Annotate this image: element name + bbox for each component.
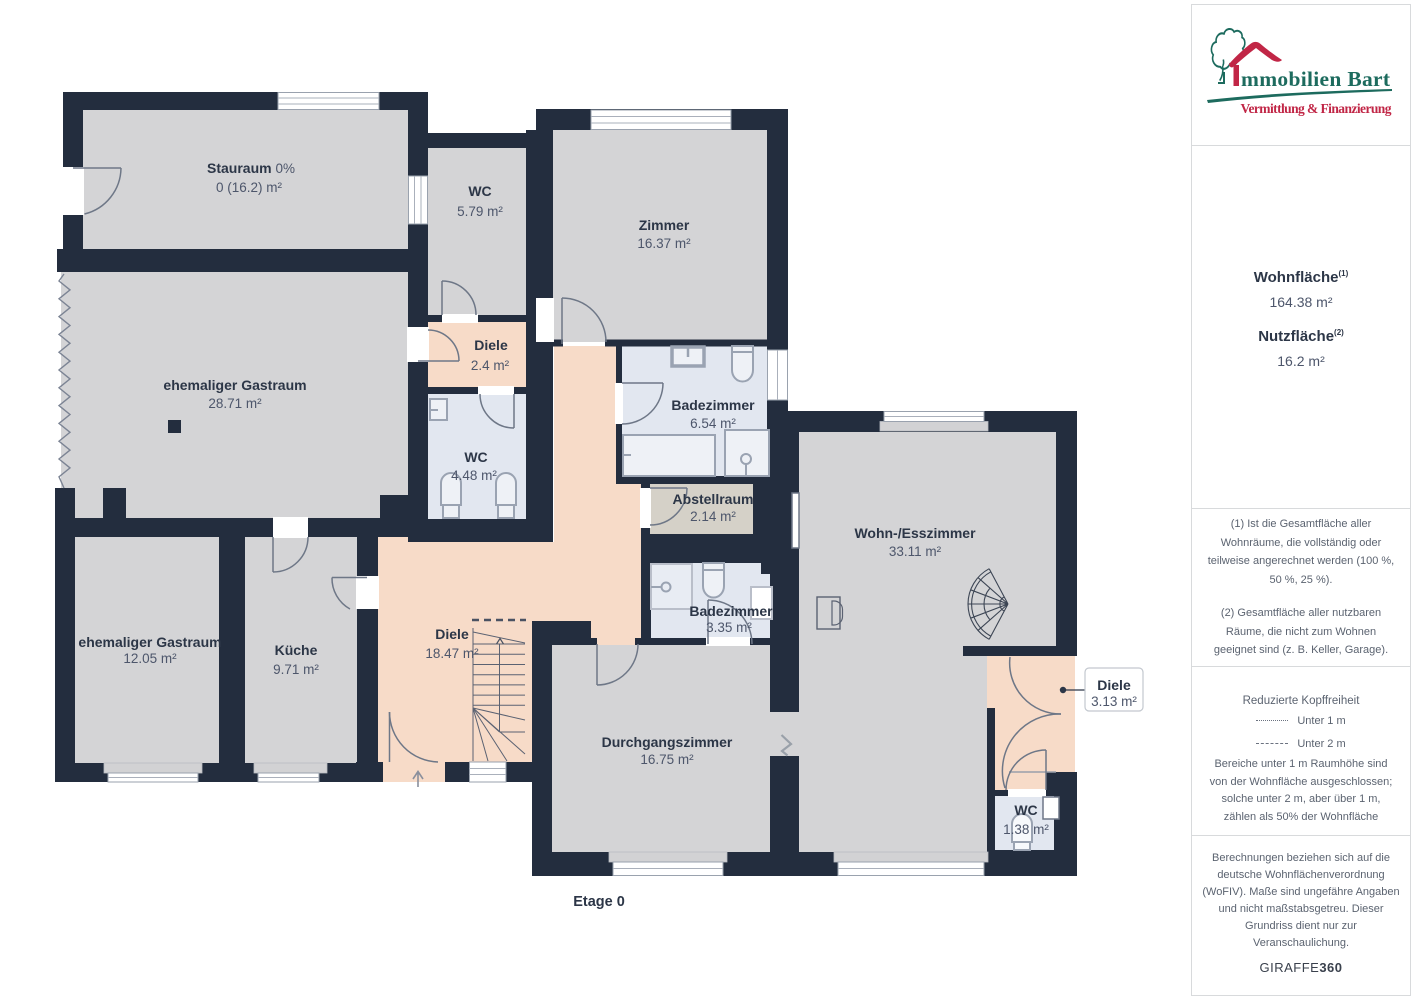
- svg-text:Küche: Küche: [275, 642, 318, 658]
- svg-text:WC: WC: [1014, 802, 1037, 818]
- svg-text:mmobilien Bart: mmobilien Bart: [1241, 67, 1391, 91]
- svg-text:Diele: Diele: [435, 626, 469, 642]
- svg-text:Etage 0: Etage 0: [573, 894, 625, 910]
- svg-text:16.37 m²: 16.37 m²: [637, 236, 691, 251]
- svg-text:3.13 m²: 3.13 m²: [1091, 694, 1137, 709]
- svg-text:6.54 m²: 6.54 m²: [690, 416, 736, 431]
- svg-text:28.71 m²: 28.71 m²: [208, 396, 262, 411]
- svg-text:9.71 m²: 9.71 m²: [273, 662, 319, 677]
- svg-text:Vermittlung & Finanzierung: Vermittlung & Finanzierung: [1241, 101, 1392, 116]
- svg-text:3.35 m²: 3.35 m²: [706, 620, 752, 635]
- svg-text:12.05 m²: 12.05 m²: [123, 651, 177, 666]
- svg-text:Abstellraum: Abstellraum: [673, 491, 754, 507]
- svg-text:WC: WC: [464, 449, 487, 465]
- svg-text:2.4 m²: 2.4 m²: [471, 358, 510, 373]
- svg-text:Stauraum 0%: Stauraum 0%: [207, 160, 295, 176]
- svg-text:Wohn-/Esszimmer: Wohn-/Esszimmer: [854, 525, 976, 541]
- svg-text:16.75 m²: 16.75 m²: [640, 752, 694, 767]
- svg-text:WC: WC: [468, 183, 491, 199]
- svg-text:ehemaliger Gastraum: ehemaliger Gastraum: [163, 377, 306, 393]
- svg-text:Badezimmer: Badezimmer: [689, 603, 773, 619]
- svg-text:Badezimmer: Badezimmer: [671, 397, 755, 413]
- svg-text:1.38 m²: 1.38 m²: [1003, 822, 1049, 837]
- svg-text:Diele: Diele: [474, 337, 508, 353]
- svg-text:18.47 m²: 18.47 m²: [425, 646, 479, 661]
- svg-text:Durchgangszimmer: Durchgangszimmer: [602, 734, 733, 750]
- svg-text:ehemaliger Gastraum: ehemaliger Gastraum: [78, 634, 221, 650]
- svg-text:0 (16.2) m²: 0 (16.2) m²: [216, 180, 283, 195]
- svg-text:Zimmer: Zimmer: [639, 217, 690, 233]
- svg-text:4.48 m²: 4.48 m²: [451, 468, 497, 483]
- svg-text:33.11 m²: 33.11 m²: [889, 544, 942, 559]
- svg-text:Diele: Diele: [1097, 677, 1131, 693]
- svg-text:5.79 m²: 5.79 m²: [457, 204, 503, 219]
- svg-text:2.14 m²: 2.14 m²: [690, 509, 736, 524]
